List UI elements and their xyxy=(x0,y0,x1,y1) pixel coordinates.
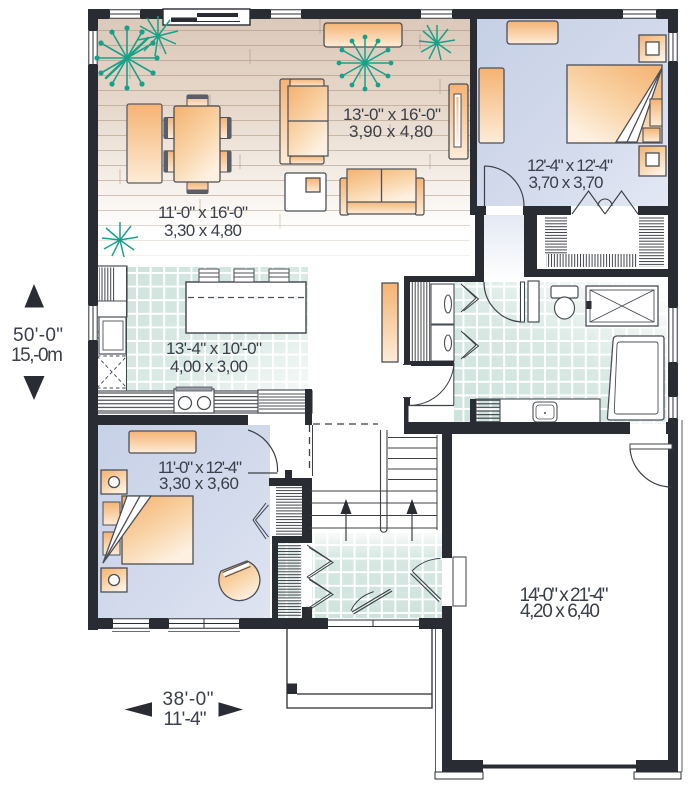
svg-text:4,00 x 3,00: 4,00 x 3,00 xyxy=(170,357,248,376)
svg-text:3,90 x 4,80: 3,90 x 4,80 xyxy=(349,122,433,141)
svg-text:3,70 x 3,70: 3,70 x 3,70 xyxy=(529,173,604,192)
svg-text:38'-0": 38'-0" xyxy=(163,689,214,710)
svg-text:13'-4" x 10'-0": 13'-4" x 10'-0" xyxy=(166,339,262,358)
svg-text:50'-0": 50'-0" xyxy=(13,325,63,346)
svg-text:3,30 x 4,80: 3,30 x 4,80 xyxy=(164,221,242,240)
svg-text:11'-0" x 16'-0": 11'-0" x 16'-0" xyxy=(158,203,248,222)
svg-text:4,20 x 6,40: 4,20 x 6,40 xyxy=(520,601,600,622)
svg-text:11'-4": 11'-4" xyxy=(164,709,207,730)
svg-text:15,-0m: 15,-0m xyxy=(11,345,63,366)
svg-text:3,30 x 3,60: 3,30 x 3,60 xyxy=(159,474,239,493)
